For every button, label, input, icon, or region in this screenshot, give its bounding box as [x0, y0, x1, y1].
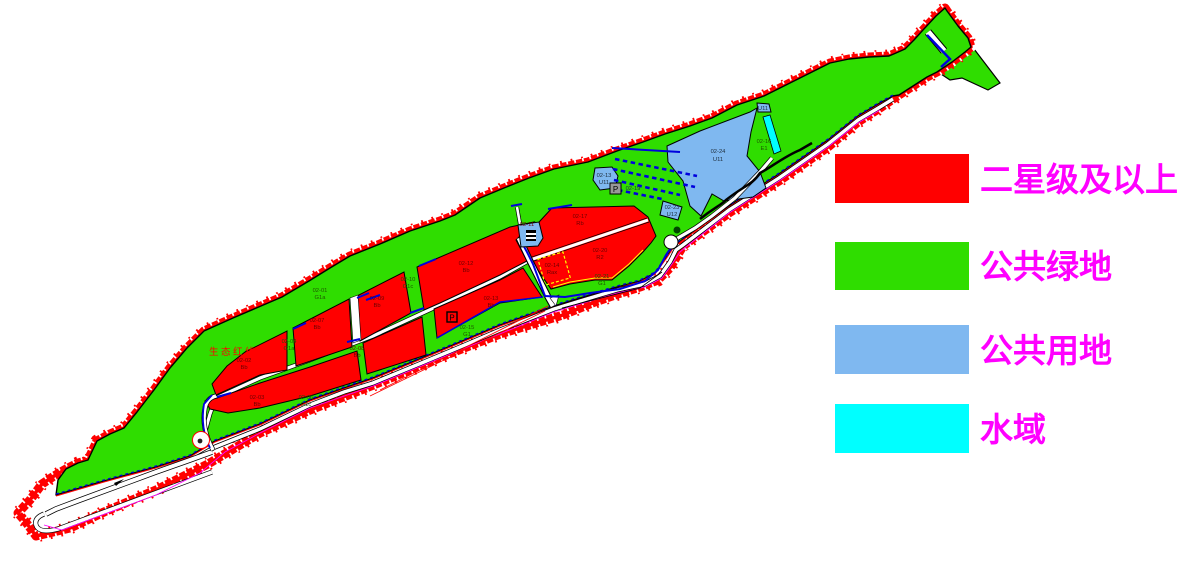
- svg-text:02-17: 02-17: [573, 214, 588, 220]
- svg-text:U11: U11: [599, 180, 609, 186]
- svg-text:02-02: 02-02: [237, 358, 252, 364]
- svg-text:水域: 水域: [980, 411, 1046, 448]
- svg-text:02-09: 02-09: [370, 296, 385, 302]
- svg-text:U11: U11: [758, 106, 768, 112]
- svg-text:U12: U12: [667, 212, 678, 218]
- svg-text:02-06: 02-06: [299, 395, 314, 401]
- svg-text:02-20: 02-20: [593, 248, 608, 254]
- svg-text:生态红线: 生态红线: [209, 346, 257, 358]
- svg-text:P: P: [449, 314, 454, 323]
- svg-text:G1c: G1c: [403, 284, 414, 290]
- svg-text:02-10: 02-10: [401, 277, 416, 283]
- svg-text:02-21: 02-21: [595, 274, 610, 280]
- svg-text:Bb: Bb: [353, 353, 360, 359]
- svg-text:R2: R2: [596, 255, 603, 261]
- svg-text:02-01: 02-01: [313, 288, 328, 294]
- svg-text:Bb: Bb: [253, 402, 260, 408]
- svg-text:G1a: G1a: [315, 295, 327, 301]
- svg-text:02-19: 02-19: [626, 186, 641, 192]
- svg-text:Bb: Bb: [487, 303, 494, 309]
- svg-text:Rax: Rax: [547, 270, 557, 276]
- svg-text:02-07: 02-07: [310, 318, 325, 324]
- svg-text:02-11: 02-11: [520, 222, 534, 228]
- svg-text:02-16: 02-16: [757, 139, 772, 145]
- svg-text:02-24: 02-24: [711, 149, 727, 155]
- svg-text:Bb: Bb: [462, 268, 469, 274]
- svg-text:E1: E1: [760, 146, 767, 152]
- svg-text:Rb: Rb: [576, 221, 583, 227]
- svg-text:02-12: 02-12: [459, 261, 474, 267]
- svg-text:02-23: 02-23: [665, 205, 680, 211]
- svg-text:Bb: Bb: [313, 325, 320, 331]
- svg-text:02-15: 02-15: [460, 325, 475, 331]
- svg-text:U11: U11: [713, 157, 723, 163]
- svg-text:G1c: G1c: [301, 402, 312, 408]
- svg-text:Bb: Bb: [240, 365, 247, 371]
- svg-text:02-08: 02-08: [350, 346, 365, 352]
- svg-text:02-03: 02-03: [250, 395, 265, 401]
- svg-text:02-04: 02-04: [282, 339, 298, 345]
- svg-text:02-14: 02-14: [545, 263, 561, 269]
- svg-text:P: P: [613, 185, 618, 194]
- svg-text:二星级及以上: 二星级及以上: [980, 161, 1178, 198]
- svg-text:公共用地: 公共用地: [980, 332, 1112, 369]
- svg-text:G1: G1: [598, 281, 606, 287]
- svg-text:Bb: Bb: [373, 303, 380, 309]
- svg-text:G1a: G1a: [284, 346, 296, 352]
- svg-text:02-13: 02-13: [597, 173, 612, 179]
- svg-text:公共绿地: 公共绿地: [980, 248, 1112, 285]
- svg-text:G1: G1: [463, 332, 471, 338]
- svg-text:02-13: 02-13: [484, 296, 499, 302]
